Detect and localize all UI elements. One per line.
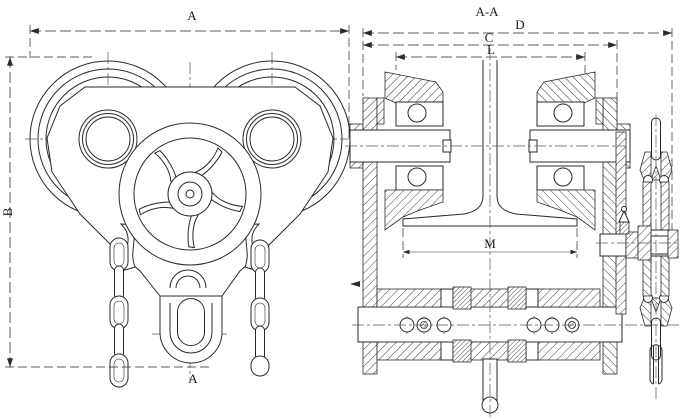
- technical-drawing-canvas: A B A A-A D C: [0, 0, 680, 419]
- hand-chain-right: [251, 240, 269, 376]
- leader-arrow: [350, 281, 360, 287]
- front-view: A B A: [0, 8, 352, 387]
- dim-b-label: B: [0, 207, 15, 216]
- load-clevis: [160, 296, 222, 363]
- dim-a-label: A: [187, 8, 197, 23]
- section-view: A-A D C L: [345, 4, 680, 418]
- dim-d-label: D: [515, 17, 524, 32]
- section-title: A-A: [475, 4, 499, 19]
- hand-wheel: [119, 123, 261, 265]
- section-mark-a: A: [188, 371, 198, 386]
- trolley-drawing: A B A A-A D C: [0, 0, 680, 419]
- hand-chain-left: [110, 238, 128, 387]
- threaded-spacer: [453, 287, 471, 309]
- threaded-spacer: [453, 340, 471, 362]
- threaded-spacer: [508, 340, 526, 362]
- dim-l-label: L: [487, 42, 495, 57]
- bearing-ball-bottom: [408, 168, 426, 186]
- threaded-spacer: [508, 287, 526, 309]
- bearing-ball-top: [408, 104, 426, 122]
